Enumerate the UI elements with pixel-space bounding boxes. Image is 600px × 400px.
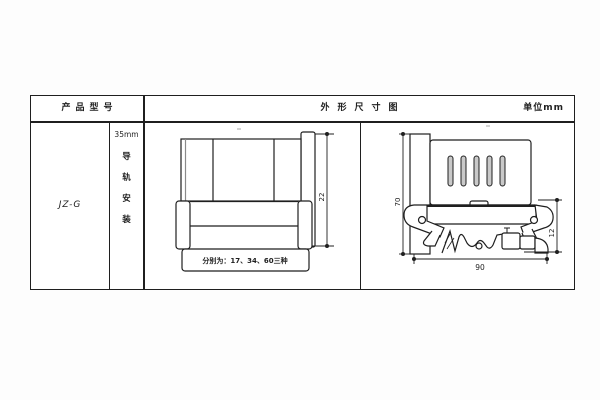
- dim-arrow-dot: [325, 244, 329, 248]
- dim-arrow-dot: [401, 252, 405, 256]
- side-width-dim-label: 90: [475, 263, 485, 272]
- spec-table: 产品型号 外形尺寸图 单位mm JZ-G 35mm 导 轨 安 装: [30, 95, 575, 290]
- side-height-dim-label: 70: [394, 198, 402, 207]
- rail-mount-vertical-label: 导 轨 安 装: [110, 151, 143, 227]
- side-main-body: [430, 140, 531, 205]
- rail-width-label: 35mm: [110, 130, 143, 139]
- front-left-tab: [176, 201, 190, 249]
- front-top-body: [181, 139, 301, 201]
- front-view-drawing: 22 分别为：17、34、60三种: [144, 121, 360, 289]
- model-value: JZ-G: [31, 121, 109, 289]
- product-model-header: 产品型号: [31, 96, 143, 121]
- outline-dimension-header: 外形尺寸图: [144, 96, 574, 121]
- vent-slot: [487, 156, 492, 186]
- mount-char-2: 轨: [122, 172, 131, 185]
- side-clip-dim-label: 12: [548, 229, 556, 238]
- dim-arrow-dot: [555, 198, 559, 202]
- rail-hatch-line: [445, 234, 450, 243]
- drawing-sheet: 产品型号 外形尺寸图 单位mm JZ-G 35mm 导 轨 安 装: [0, 0, 600, 400]
- rail-profile-hole: [476, 243, 482, 249]
- vent-slot: [461, 156, 466, 186]
- front-height-dim-label: 22: [318, 193, 326, 202]
- front-width-note: 分别为：17、34、60三种: [202, 256, 287, 265]
- front-right-tab: [298, 201, 312, 249]
- mounting-bar: [426, 205, 536, 224]
- side-left-flange: [410, 134, 430, 254]
- latch-end-cap: [535, 238, 548, 253]
- screw-hole-right: [531, 217, 538, 224]
- mount-char-3: 安: [122, 193, 131, 206]
- mounting-cell: 35mm 导 轨 安 装: [110, 121, 143, 289]
- mount-char-1: 导: [122, 151, 131, 164]
- latch-slider-button: [520, 236, 535, 249]
- dim-arrow-dot: [412, 257, 416, 261]
- latch-slider-block: [502, 233, 520, 249]
- unit-label: 单位mm: [523, 96, 564, 121]
- side-view-drawing: 70 12 90: [360, 121, 576, 289]
- dim-arrow-dot: [555, 250, 559, 254]
- vent-slot: [474, 156, 479, 186]
- dim-arrow-dot: [325, 132, 329, 136]
- dim-arrow-dot: [401, 132, 405, 136]
- screw-hole-left: [419, 217, 426, 224]
- vent-slot: [448, 156, 453, 186]
- mount-char-4: 装: [122, 214, 131, 227]
- vent-slot: [500, 156, 505, 186]
- dim-arrow-dot: [545, 257, 549, 261]
